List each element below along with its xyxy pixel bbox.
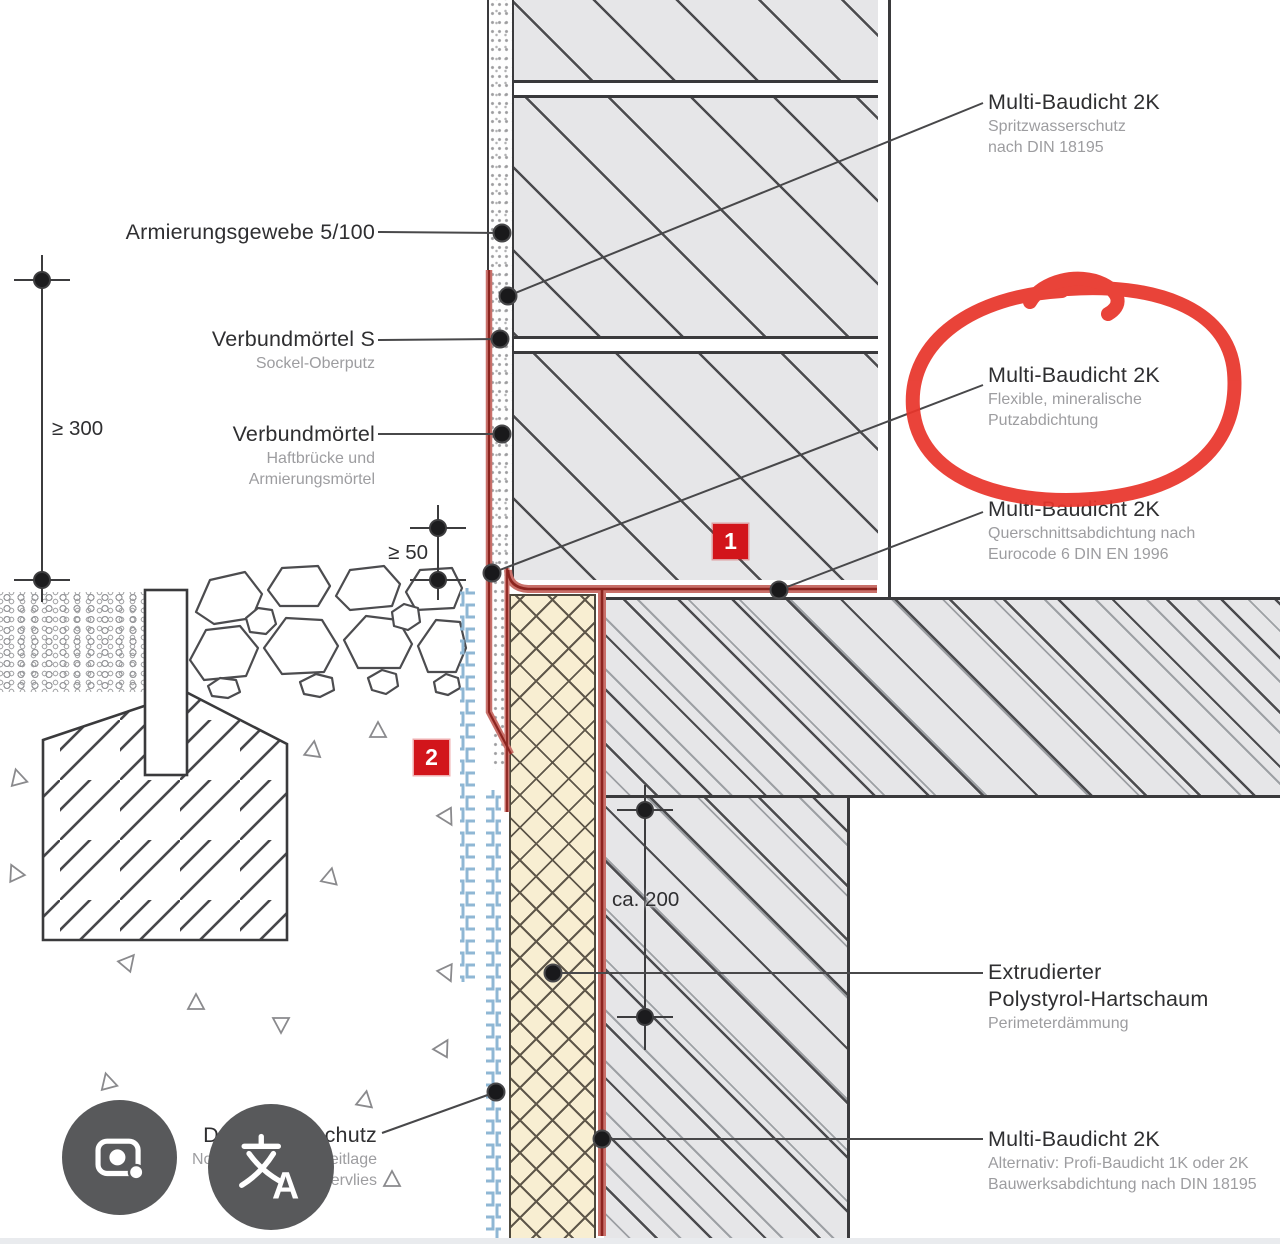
label-armierungsgewebe: Armierungsgewebe 5/100 — [126, 219, 375, 246]
dimple-membrane-upper — [460, 588, 475, 982]
rubble-stones — [190, 566, 466, 698]
svg-text:A: A — [272, 1166, 299, 1206]
diagram-linework — [0, 0, 1280, 1244]
label-verbundmoertel-s: Verbundmörtel S Sockel-Oberputz — [212, 326, 375, 374]
construction-detail-screenshot: Multi-Baudicht 2K Spritzwasserschutz nac… — [0, 0, 1280, 1244]
translate-button[interactable]: A — [208, 1104, 334, 1230]
label-querschnittsabdichtung: Multi-Baudicht 2K Querschnittsabdichtung… — [988, 496, 1195, 565]
camera-lens-button[interactable] — [62, 1100, 177, 1215]
dimension-text-200: ca. 200 — [612, 888, 679, 912]
label-bauwerksabdichtung: Multi-Baudicht 2K Alternativ: Profi-Baud… — [988, 1126, 1257, 1195]
waterproofing-membranes — [489, 270, 877, 1236]
label-perimeterdaemmung: Extrudierter Polystyrol-Hartschaum Perim… — [988, 959, 1208, 1034]
camera-lens-icon — [89, 1127, 151, 1189]
detail-marker-2: 2 — [414, 740, 449, 775]
dimple-membrane-lower — [486, 790, 501, 1238]
translate-icon: A — [232, 1128, 310, 1206]
bottom-edge-bar — [0, 1238, 1280, 1244]
dimension-text-300: ≥ 300 — [52, 417, 103, 441]
label-spritzwasserschutz: Multi-Baudicht 2K Spritzwasserschutz nac… — [988, 89, 1160, 158]
dimension-200 — [617, 785, 673, 1050]
detail-marker-1: 1 — [713, 524, 748, 559]
dimension-text-50: ≥ 50 — [388, 541, 428, 565]
label-putzabdichtung: Multi-Baudicht 2K Flexible, mineralische… — [988, 362, 1160, 431]
label-verbundmoertel: Verbundmörtel Haftbrücke und Armierungsm… — [233, 421, 375, 490]
edge-post — [145, 590, 187, 775]
